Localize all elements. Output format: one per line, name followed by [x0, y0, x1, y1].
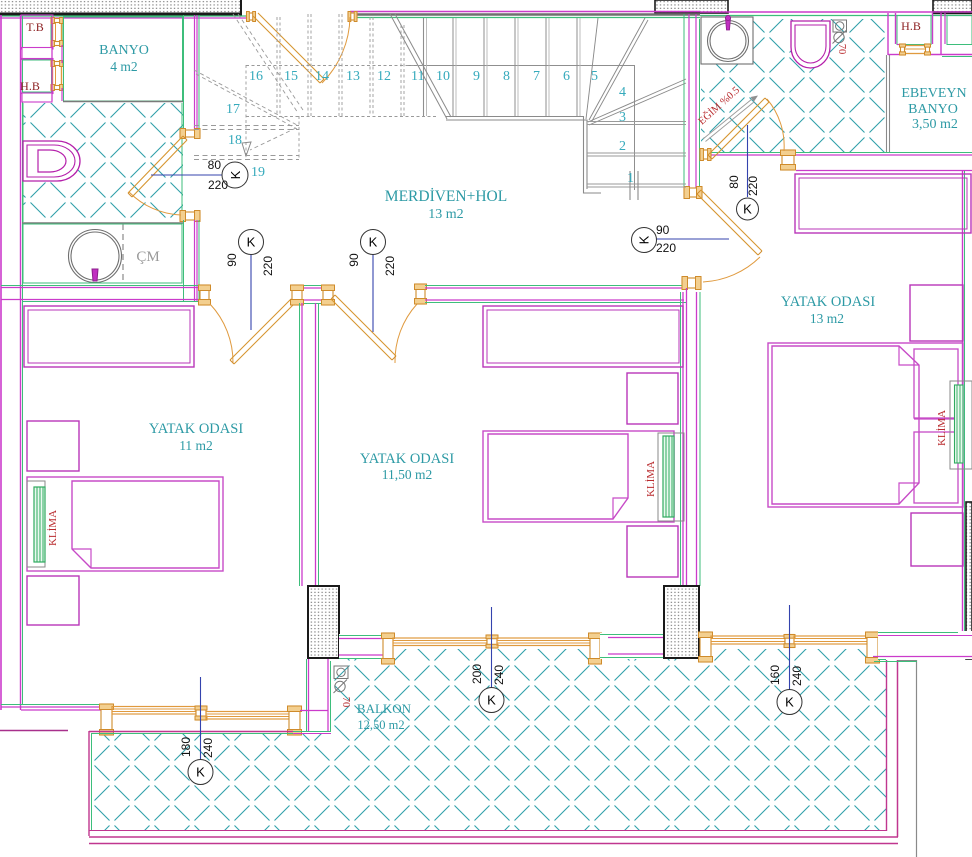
svg-text:YATAK ODASI: YATAK ODASI: [360, 451, 454, 467]
svg-text:80: 80: [208, 158, 222, 172]
svg-text:T.B: T.B: [26, 20, 43, 34]
svg-text:11: 11: [411, 69, 424, 84]
svg-text:K: K: [228, 170, 243, 179]
svg-text:13: 13: [346, 69, 360, 84]
svg-text:13 m2: 13 m2: [810, 311, 844, 326]
svg-text:H.B: H.B: [20, 79, 40, 93]
svg-text:180: 180: [179, 737, 193, 757]
svg-text:240: 240: [790, 666, 804, 686]
svg-text:240: 240: [492, 665, 506, 685]
svg-text:K: K: [743, 202, 752, 217]
svg-text:4 m2: 4 m2: [110, 59, 137, 74]
svg-text:BALKON: BALKON: [357, 701, 412, 716]
svg-text:10: 10: [436, 69, 450, 84]
svg-text:MERDİVEN+HOL: MERDİVEN+HOL: [385, 188, 507, 205]
svg-text:8: 8: [503, 69, 510, 84]
svg-text:70: 70: [340, 697, 351, 708]
svg-text:3,50 m2: 3,50 m2: [912, 117, 958, 132]
svg-text:220: 220: [383, 256, 397, 276]
svg-text:H.B: H.B: [901, 19, 921, 33]
svg-text:240: 240: [201, 738, 215, 758]
svg-text:4: 4: [619, 85, 626, 100]
svg-text:90: 90: [656, 223, 670, 237]
svg-text:6: 6: [563, 69, 570, 84]
svg-text:11 m2: 11 m2: [179, 438, 213, 453]
svg-text:KLİMA: KLİMA: [645, 461, 657, 497]
svg-text:3: 3: [619, 110, 626, 125]
svg-text:220: 220: [261, 256, 275, 276]
svg-text:18: 18: [228, 133, 242, 148]
svg-text:K: K: [247, 235, 256, 250]
svg-text:19: 19: [251, 165, 265, 180]
svg-text:80: 80: [727, 175, 741, 189]
svg-text:5: 5: [591, 69, 598, 84]
svg-text:13 m2: 13 m2: [428, 207, 463, 222]
svg-text:220: 220: [208, 178, 228, 192]
svg-text:9: 9: [473, 69, 480, 84]
svg-text:K: K: [637, 235, 652, 244]
svg-text:YATAK ODASI: YATAK ODASI: [781, 294, 875, 310]
svg-text:15: 15: [284, 69, 298, 84]
svg-text:BANYO: BANYO: [908, 102, 958, 117]
svg-text:90: 90: [225, 253, 239, 267]
svg-text:90: 90: [347, 253, 361, 267]
svg-text:YATAK ODASI: YATAK ODASI: [149, 421, 243, 437]
svg-text:17: 17: [226, 102, 240, 117]
svg-text:12: 12: [377, 69, 391, 84]
svg-text:ÇM: ÇM: [136, 249, 159, 265]
svg-text:2: 2: [619, 139, 626, 154]
svg-text:EBEVEYN: EBEVEYN: [901, 86, 966, 101]
svg-text:220: 220: [746, 176, 760, 196]
svg-text:BANYO: BANYO: [99, 43, 149, 58]
svg-text:200: 200: [470, 664, 484, 684]
svg-text:12,50 m2: 12,50 m2: [357, 718, 404, 732]
svg-text:1: 1: [627, 171, 634, 186]
svg-text:160: 160: [768, 665, 782, 685]
svg-text:K: K: [487, 693, 496, 708]
svg-text:KLİMA: KLİMA: [47, 510, 59, 546]
svg-text:14: 14: [315, 69, 329, 84]
svg-text:11,50 m2: 11,50 m2: [382, 467, 433, 482]
svg-text:220: 220: [656, 241, 676, 255]
svg-text:KLİMA: KLİMA: [936, 410, 948, 446]
svg-text:7: 7: [533, 69, 540, 84]
svg-text:K: K: [369, 235, 378, 250]
svg-text:K: K: [785, 695, 794, 710]
svg-text:16: 16: [249, 69, 263, 84]
svg-text:70: 70: [836, 44, 847, 55]
svg-text:K: K: [196, 765, 205, 780]
